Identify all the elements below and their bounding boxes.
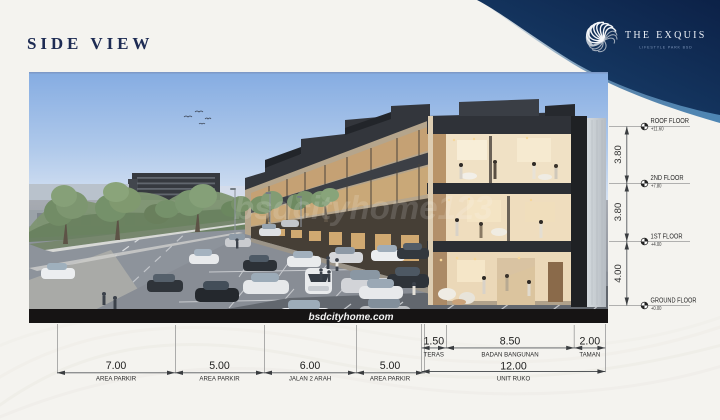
svg-text:3.80: 3.80 (613, 203, 624, 222)
svg-text:2ND FLOOR: 2ND FLOOR (651, 173, 684, 182)
svg-text:AREA PARKIR: AREA PARKIR (370, 376, 411, 383)
svg-text:5.00: 5.00 (380, 360, 401, 372)
svg-text:5.00: 5.00 (209, 360, 230, 372)
svg-text:+4.00: +4.00 (651, 242, 662, 248)
svg-text:7.00: 7.00 (106, 360, 127, 372)
svg-text:JALAN 2 ARAH: JALAN 2 ARAH (289, 376, 331, 383)
svg-text:1ST FLOOR: 1ST FLOOR (651, 232, 683, 241)
svg-text:UNIT RUKO: UNIT RUKO (497, 376, 531, 383)
svg-text:BADAN BANGUNAN: BADAN BANGUNAN (481, 352, 538, 359)
svg-text:ROOF FLOOR: ROOF FLOOR (651, 116, 690, 125)
svg-text:3.80: 3.80 (613, 145, 624, 164)
svg-text:AREA PARKIR: AREA PARKIR (96, 376, 137, 383)
svg-text:+0.00: +0.00 (651, 306, 662, 312)
svg-text:TERAS: TERAS (424, 352, 444, 359)
svg-text:8.50: 8.50 (500, 336, 521, 348)
svg-text:GROUND FLOOR: GROUND FLOOR (651, 296, 697, 305)
svg-text:12.00: 12.00 (500, 361, 527, 373)
svg-text:+7.80: +7.80 (651, 184, 662, 190)
svg-text:2.00: 2.00 (579, 336, 600, 348)
svg-text:+11.60: +11.60 (651, 127, 664, 133)
svg-text:4.00: 4.00 (613, 264, 624, 283)
svg-text:1.50: 1.50 (423, 336, 444, 348)
svg-text:TAMAN: TAMAN (579, 352, 600, 359)
svg-text:6.00: 6.00 (300, 360, 321, 372)
svg-text:AREA PARKIR: AREA PARKIR (199, 376, 240, 383)
